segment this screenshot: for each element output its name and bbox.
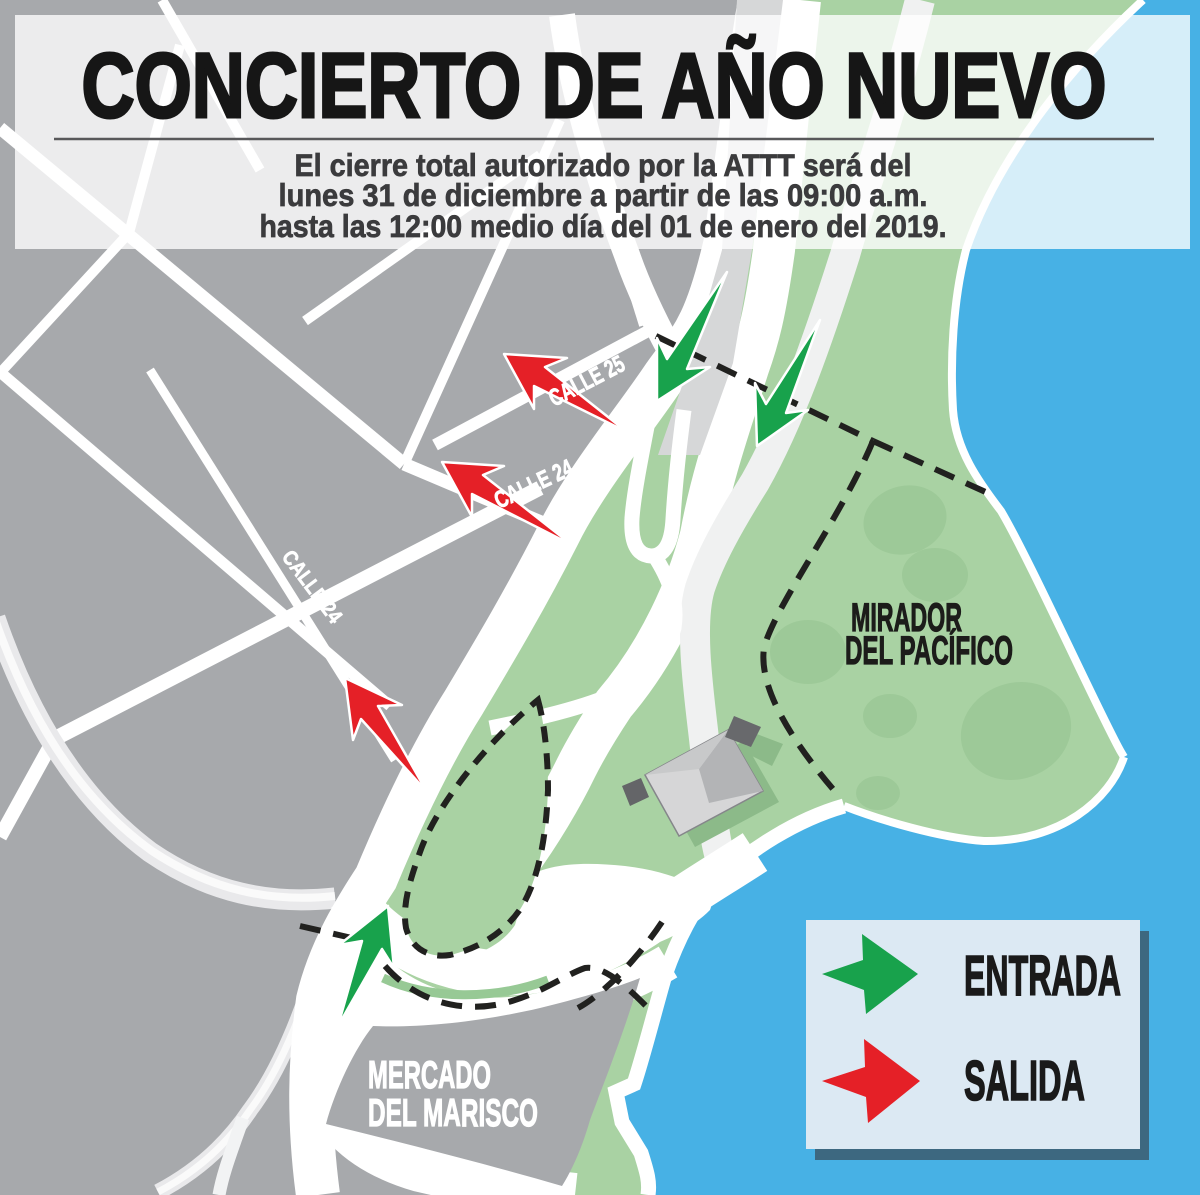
svg-text:DEL MARISCO: DEL MARISCO	[368, 1092, 538, 1135]
svg-text:MERCADO: MERCADO	[368, 1054, 491, 1097]
svg-text:hasta las 12:00 medio día del: hasta las 12:00 medio día del 01 de ener…	[260, 208, 947, 244]
svg-text:CONCIERTO DE AÑO NUEVO: CONCIERTO DE AÑO NUEVO	[82, 34, 1107, 137]
svg-text:SALIDA: SALIDA	[964, 1049, 1085, 1113]
svg-text:DEL PACÍFICO: DEL PACÍFICO	[845, 628, 1013, 673]
svg-text:ENTRADA: ENTRADA	[964, 944, 1121, 1008]
